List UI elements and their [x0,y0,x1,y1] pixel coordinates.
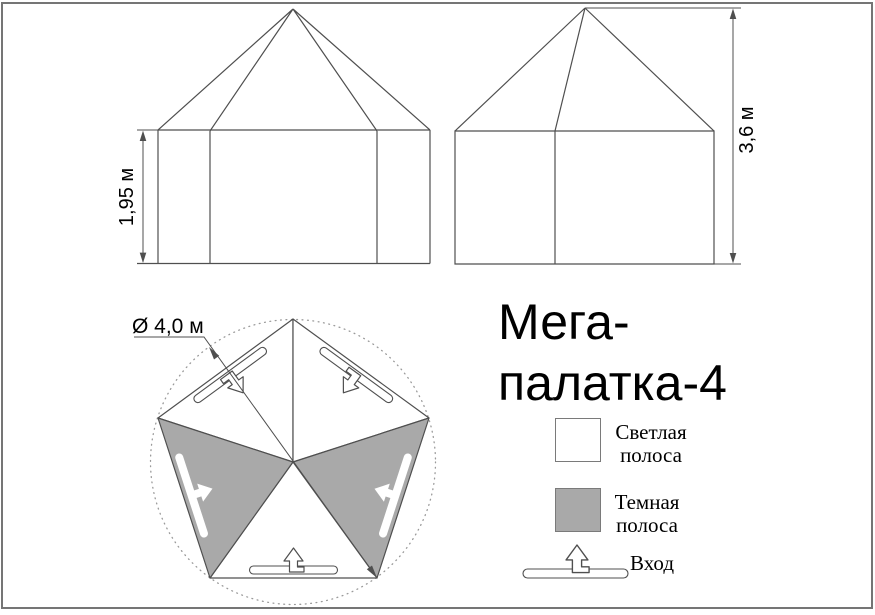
dim-arrow-down-icon [140,253,147,263]
legend-light-line2: полоса [596,444,706,467]
front-height-label: 1,95 м [116,168,138,226]
legend-dark-label: Темная полоса [592,491,702,537]
side-extension-lines [585,8,741,264]
diameter-label: Ø 4,0 м [132,315,204,338]
side-height-dimension: 3,6 м [730,9,758,264]
dim-arrow-up-icon [730,9,737,20]
tent-technical-drawing: 1,95 м 3,6 м [0,0,875,615]
front-view: 1,95 м [116,9,430,264]
dim-arrow-down-icon [730,253,737,264]
legend-light-label: Светлая полоса [596,421,706,467]
product-title-line1: Мега- [498,292,727,353]
front-wall-lines [158,130,430,264]
plan-view: Ø 4,0 м [132,315,436,605]
front-roof-lines [158,9,430,131]
dim-arrow-up-icon [140,131,147,141]
product-title-line2: палатка-4 [498,353,727,414]
legend-entrance-label: Вход [630,551,674,576]
legend-light-swatch [555,418,601,462]
side-body-outline [455,131,714,264]
drawing-page: 1,95 м 3,6 м [0,0,875,615]
legend-light-line1: Светлая [596,421,706,444]
legend-entrance-symbol [523,545,628,578]
side-height-label: 3,6 м [736,106,758,153]
product-title: Мега- палатка-4 [498,292,727,414]
side-view: 3,6 м [455,8,758,264]
legend-dark-line1: Темная [592,491,702,514]
front-height-dimension: 1,95 м [116,131,146,263]
diameter-arrow-icon [209,347,219,360]
legend-dark-line2: полоса [592,514,702,537]
side-roof-lines [455,8,714,131]
